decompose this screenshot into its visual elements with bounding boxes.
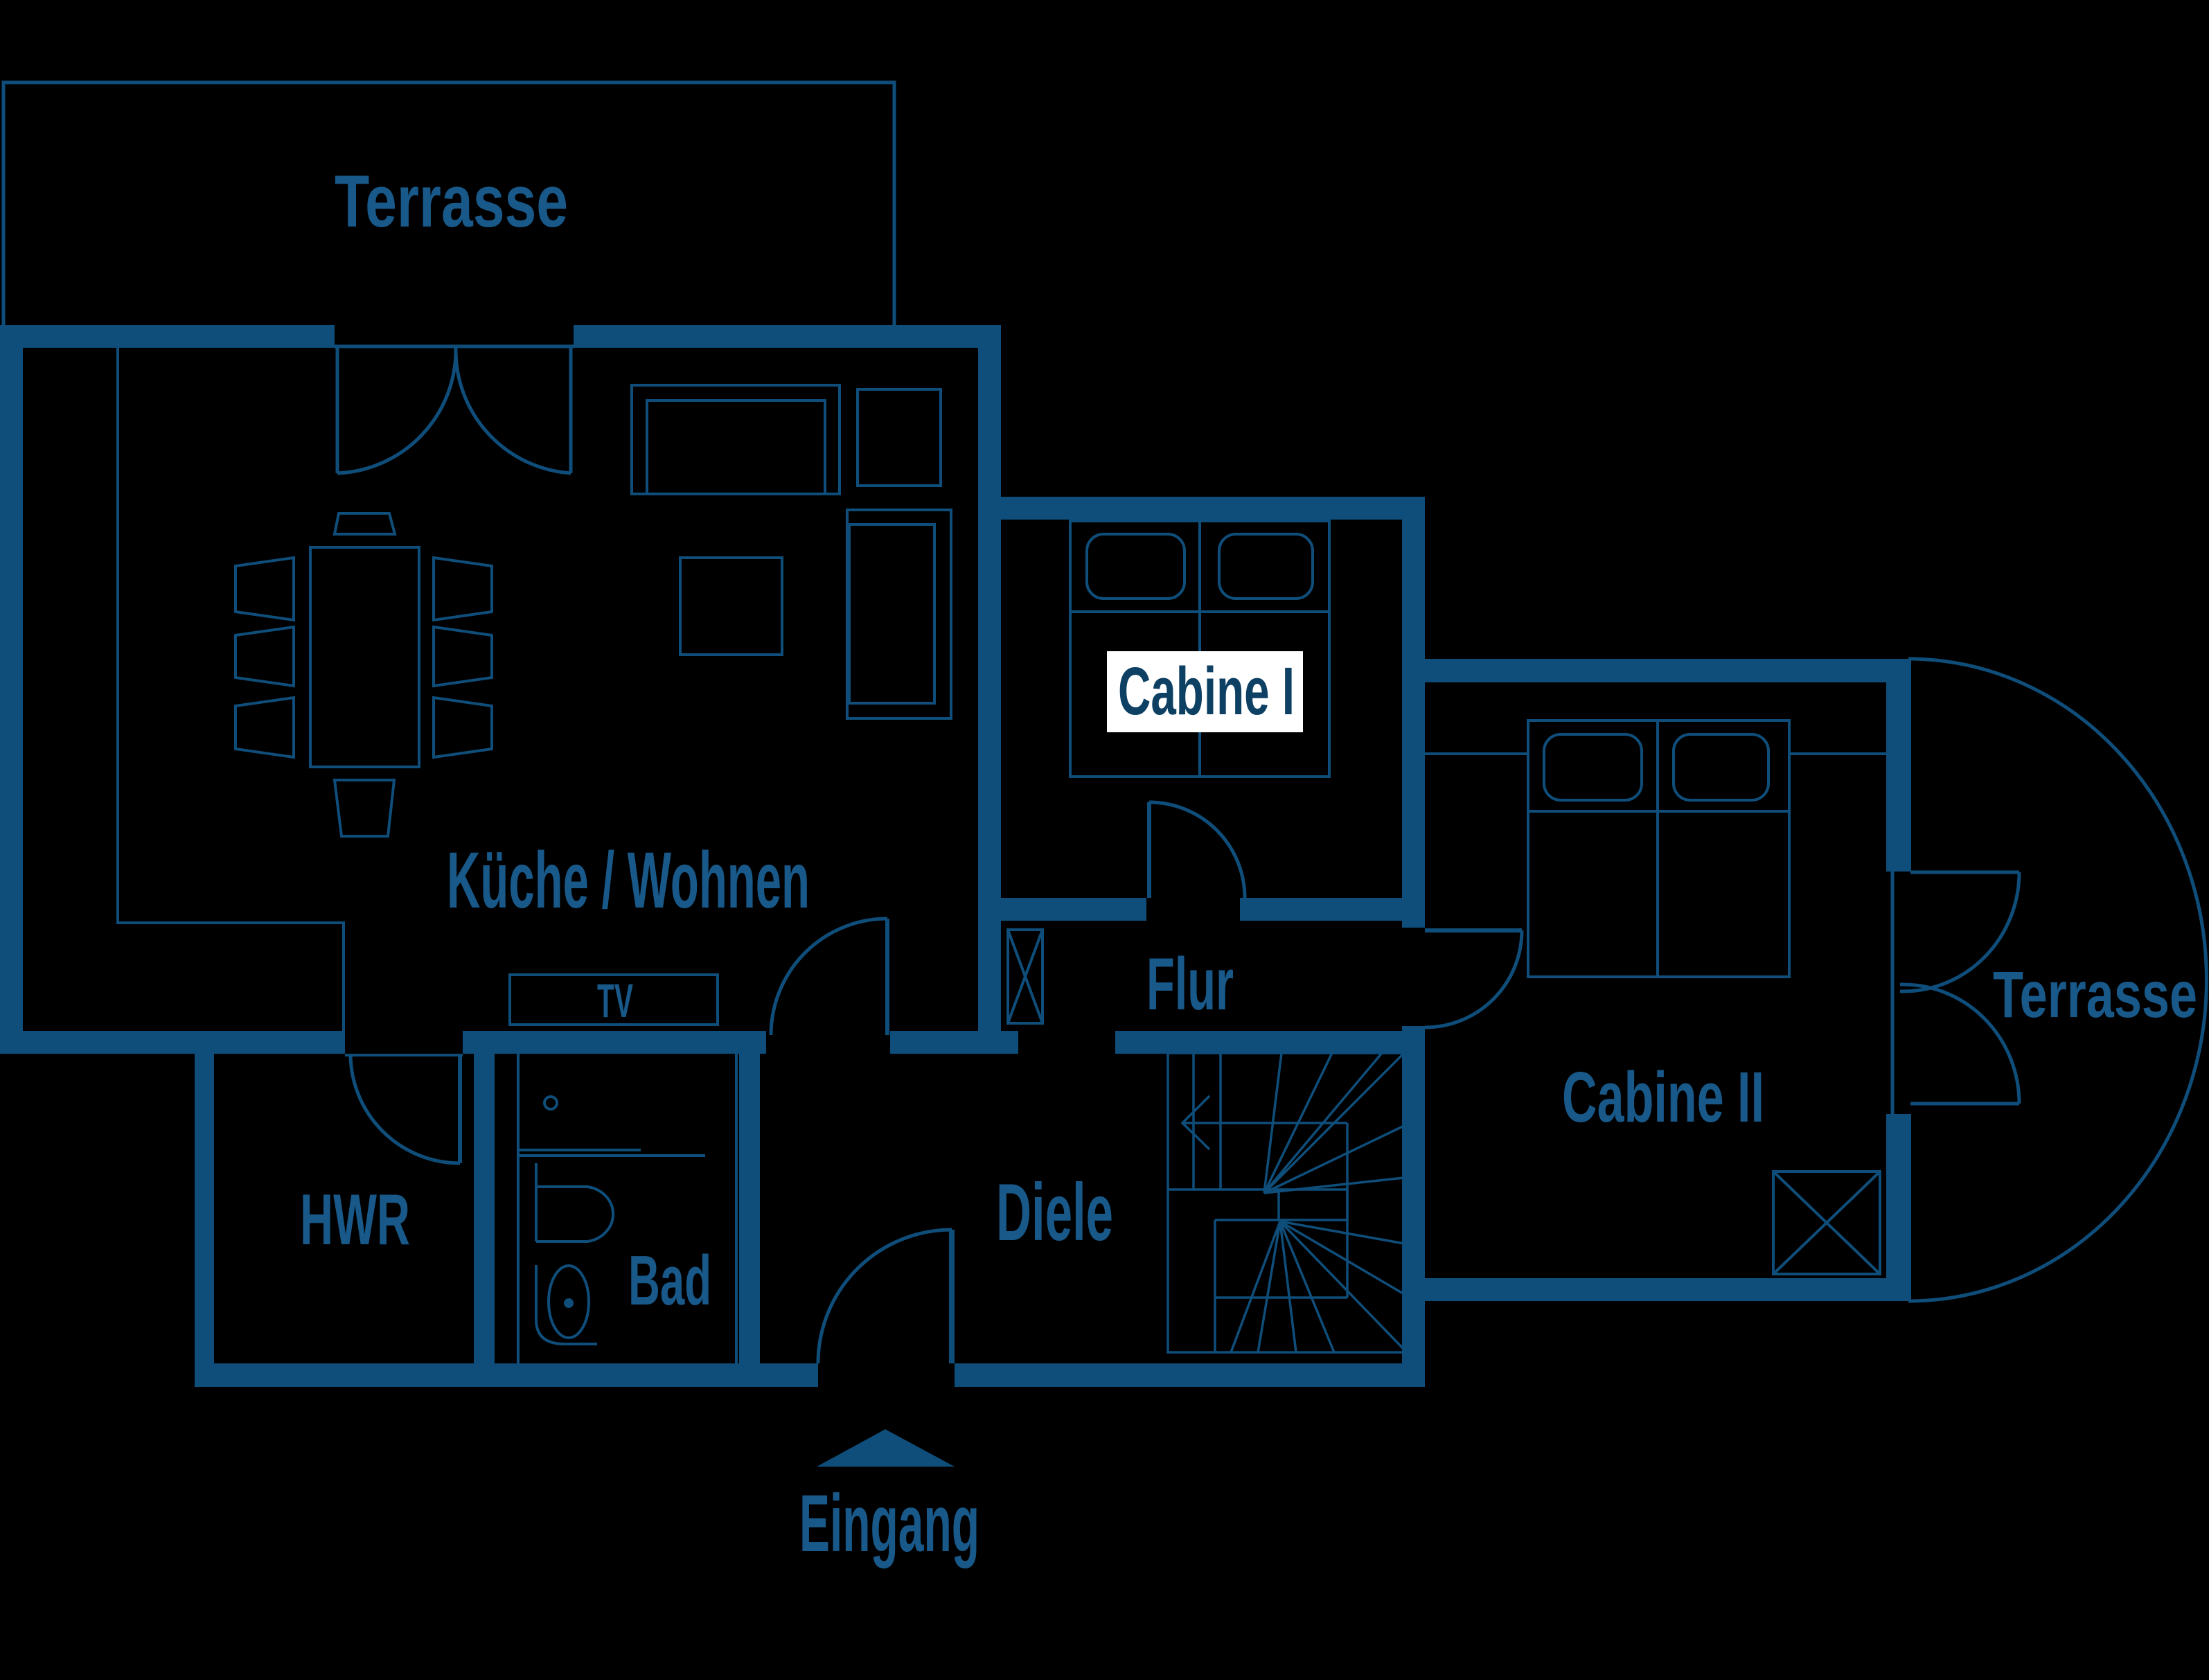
svg-text:Terrasse: Terrasse [1993,958,2197,1032]
svg-text:Eingang: Eingang [799,1478,979,1568]
svg-text:Cabine I: Cabine I [1118,653,1295,729]
svg-text:Diele: Diele [996,1167,1113,1257]
svg-text:Küche / Wohnen: Küche / Wohnen [447,836,810,925]
svg-text:Bad: Bad [628,1242,711,1320]
svg-text:Flur: Flur [1146,942,1234,1025]
svg-text:Terrasse: Terrasse [335,159,568,242]
svg-text:TV: TV [597,974,633,1027]
svg-text:HWR: HWR [300,1180,410,1260]
svg-text:Cabine II: Cabine II [1562,1057,1764,1137]
